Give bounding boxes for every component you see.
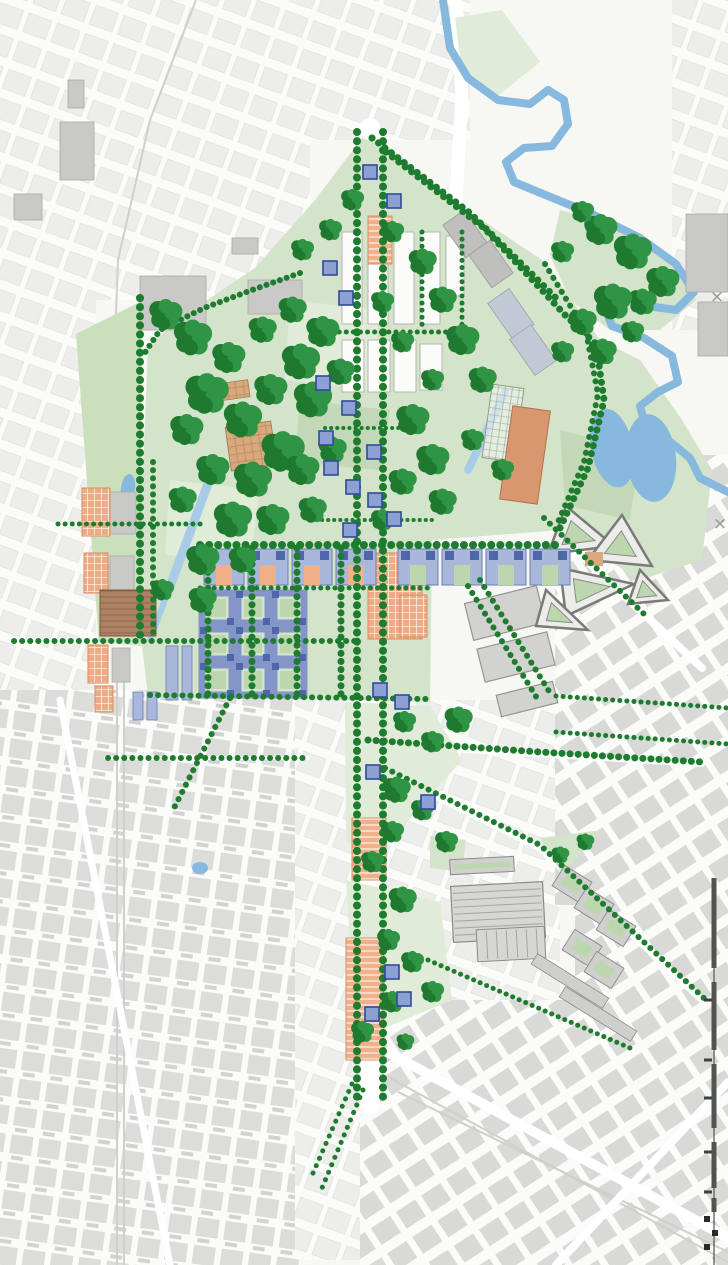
- tree-cluster: [159, 299, 173, 313]
- tree-cluster: [384, 929, 394, 939]
- u-block-tower: [426, 551, 435, 560]
- tree-cluster: [442, 831, 452, 841]
- tree-cluster: [233, 422, 248, 437]
- tree-cluster: [456, 324, 470, 338]
- tree-cluster: [656, 266, 670, 280]
- railway-tick: [704, 1151, 712, 1154]
- tree-cluster: [426, 444, 440, 458]
- tree-cluster: [594, 214, 608, 228]
- pavilion-building: [339, 291, 353, 305]
- railway-marker: [704, 1244, 710, 1250]
- tree-cluster: [316, 316, 330, 330]
- tree-cluster: [296, 454, 310, 468]
- pavilion-building: [397, 992, 411, 1006]
- courtyard-block-tower: [236, 627, 243, 634]
- tree-cluster: [307, 496, 319, 508]
- tree-cluster: [427, 381, 436, 390]
- u-block-tower: [276, 551, 285, 560]
- pavilion-building: [366, 765, 380, 779]
- tree-cluster: [435, 302, 446, 313]
- gray-building: [698, 302, 728, 356]
- tree-cluster: [441, 843, 450, 852]
- tree-cluster: [255, 332, 266, 343]
- tree-cluster: [401, 1043, 408, 1050]
- pavilion-building: [367, 445, 381, 459]
- u-block-tower: [445, 551, 454, 560]
- tree-cluster: [654, 284, 667, 297]
- tree-cluster: [389, 792, 400, 803]
- tree-cluster: [575, 324, 586, 335]
- white-shed: [394, 232, 414, 324]
- pavilion-building: [342, 401, 356, 415]
- tree-cluster: [453, 706, 465, 718]
- tree-cluster: [367, 863, 376, 872]
- pavilion-building: [323, 261, 337, 275]
- tree-cluster: [195, 602, 206, 613]
- tree-cluster: [402, 1033, 410, 1041]
- pavilion-building: [368, 493, 382, 507]
- tree-cluster: [417, 811, 426, 820]
- tree-cluster: [368, 851, 378, 861]
- blue-slab: [166, 646, 178, 700]
- tree-cluster: [358, 1021, 368, 1031]
- tree-cluster: [417, 248, 429, 260]
- tree-cluster: [387, 233, 396, 242]
- tree-cluster: [628, 321, 638, 331]
- tree-cluster: [377, 303, 386, 312]
- courtyard-block-tower: [272, 627, 279, 634]
- railway-tick: [704, 1097, 712, 1100]
- tree-cluster: [597, 338, 609, 350]
- tree-cluster: [581, 843, 588, 850]
- u-block-courtyard: [216, 565, 232, 585]
- tree-cluster: [196, 397, 213, 414]
- gray-building: [686, 214, 728, 292]
- tree-cluster: [603, 304, 618, 319]
- tree-cluster: [272, 455, 289, 472]
- tree-cluster: [294, 472, 307, 485]
- pavilion-building: [387, 194, 401, 208]
- tree-cluster: [558, 341, 568, 351]
- tree-cluster: [415, 264, 426, 275]
- tree-cluster: [428, 369, 438, 379]
- pavilion-building: [316, 376, 330, 390]
- tree-cluster: [314, 334, 327, 347]
- u-block-courtyard: [410, 565, 426, 585]
- pavilion-building: [363, 165, 377, 179]
- tree-cluster: [157, 591, 166, 600]
- tree-cluster: [178, 432, 191, 445]
- tree-cluster: [578, 201, 588, 211]
- tree-cluster: [635, 304, 646, 315]
- u-block-courtyard: [454, 565, 470, 585]
- tree-cluster: [497, 471, 506, 480]
- tree-cluster: [498, 459, 508, 469]
- tree-cluster: [424, 462, 437, 475]
- gray-building: [110, 492, 136, 534]
- pavilion-building: [319, 431, 333, 445]
- map-marker-x-2[interactable]: ×: [713, 514, 727, 534]
- tree-cluster: [298, 239, 308, 249]
- courtyard-block-tower: [272, 663, 279, 670]
- tree-cluster: [451, 722, 462, 733]
- railway-tick: [704, 1059, 712, 1062]
- tree-cluster: [206, 454, 220, 468]
- tree-cluster: [264, 522, 277, 535]
- gray-building: [68, 80, 84, 108]
- tree-cluster: [391, 776, 403, 788]
- pavilion-building: [346, 480, 360, 494]
- tree-cluster: [333, 374, 344, 385]
- masterplan-map-stage: × ×: [0, 0, 728, 1265]
- courtyard-block-tower: [263, 618, 270, 625]
- tree-cluster: [605, 284, 622, 301]
- pavilion-building: [387, 512, 401, 526]
- tree-cluster: [347, 201, 356, 210]
- pavilion-building: [373, 683, 387, 697]
- tree-cluster: [223, 522, 238, 537]
- tree-cluster: [388, 221, 398, 231]
- tree-cluster: [407, 963, 416, 972]
- tree-cluster: [623, 254, 638, 269]
- pavilion-building: [395, 695, 409, 709]
- tree-cluster: [335, 358, 347, 370]
- blue-slab: [133, 692, 143, 720]
- tree-cluster: [558, 241, 568, 251]
- tree-cluster: [357, 1033, 366, 1042]
- tree-cluster: [237, 546, 249, 558]
- tree-cluster: [387, 833, 396, 842]
- u-block-tower: [558, 551, 567, 560]
- tree-cluster: [406, 404, 420, 418]
- tree-cluster: [625, 234, 642, 251]
- u-block-tower: [401, 551, 410, 560]
- tree-cluster: [266, 504, 280, 518]
- courtyard-block-tower: [272, 591, 279, 598]
- tree-cluster: [293, 344, 310, 361]
- tree-cluster: [377, 521, 386, 530]
- tree-cluster: [454, 342, 467, 355]
- tree-cluster: [388, 821, 398, 831]
- gray-building: [110, 556, 134, 592]
- u-block-courtyard: [498, 565, 514, 585]
- tree-cluster: [387, 1003, 396, 1012]
- tree-cluster: [637, 288, 649, 300]
- tree-cluster: [326, 219, 336, 229]
- tree-cluster: [285, 312, 296, 323]
- u-block-tower: [320, 551, 329, 560]
- tree-cluster: [297, 251, 306, 260]
- u-block-tower: [533, 551, 542, 560]
- pavilion-building: [343, 523, 357, 537]
- tree-cluster: [325, 231, 334, 240]
- tree-cluster: [291, 364, 306, 379]
- tree-cluster: [225, 502, 242, 519]
- salmon-building: [82, 488, 110, 536]
- tree-cluster: [428, 981, 438, 991]
- tree-cluster: [158, 579, 168, 589]
- tree-cluster: [556, 856, 563, 863]
- tree-cluster: [194, 562, 207, 575]
- railway-tick: [704, 1191, 712, 1194]
- gray-building: [14, 194, 42, 220]
- tree-cluster: [196, 544, 210, 558]
- tree-cluster: [395, 484, 406, 495]
- railway-tick: [704, 999, 712, 1002]
- tree-cluster: [395, 902, 406, 913]
- tree-cluster: [427, 993, 436, 1002]
- courtyard-block-tower: [236, 663, 243, 670]
- blue-slab: [182, 646, 192, 700]
- tree-cluster: [262, 392, 275, 405]
- tree-cluster: [220, 360, 233, 373]
- tree-cluster: [399, 723, 408, 732]
- u-block-tower: [489, 551, 498, 560]
- tree-cluster: [177, 486, 189, 498]
- pond: [192, 862, 208, 874]
- courtyard-block-tower: [227, 654, 234, 661]
- tree-cluster: [257, 316, 269, 328]
- tree-cluster: [198, 373, 217, 392]
- tree-cluster: [427, 743, 436, 752]
- tree-cluster: [204, 472, 217, 485]
- tree-cluster: [557, 353, 566, 362]
- tree-cluster: [627, 333, 636, 342]
- tree-cluster: [243, 482, 258, 497]
- tree-cluster: [397, 468, 409, 480]
- tree-cluster: [595, 354, 606, 365]
- tree-cluster: [305, 512, 316, 523]
- railway-marker: [712, 1230, 718, 1236]
- white-shed: [368, 340, 390, 392]
- tree-cluster: [582, 833, 590, 841]
- tree-cluster: [468, 429, 478, 439]
- tree-cluster: [245, 462, 262, 479]
- tree-cluster: [383, 941, 392, 950]
- pavilion-building: [324, 461, 338, 475]
- tree-cluster: [437, 488, 449, 500]
- courtyard-block-tower: [263, 654, 270, 661]
- salmon-building: [95, 686, 113, 712]
- map-marker-x-1[interactable]: ×: [710, 287, 724, 307]
- tree-cluster: [437, 286, 449, 298]
- brick-building: [100, 590, 156, 636]
- gray-building: [60, 122, 94, 180]
- tree-cluster: [180, 414, 194, 428]
- tree-cluster: [274, 431, 293, 450]
- tree-cluster: [185, 320, 202, 337]
- u-block-courtyard: [260, 565, 276, 585]
- railway-marker: [704, 1216, 710, 1222]
- u-block-tower: [470, 551, 479, 560]
- salmon-building: [400, 595, 427, 637]
- tree-cluster: [408, 951, 418, 961]
- tree-cluster: [397, 343, 406, 352]
- masterplan-map: × ×: [0, 0, 728, 1265]
- tree-cluster: [235, 562, 246, 573]
- tan-patch: [585, 552, 603, 566]
- tree-cluster: [388, 991, 398, 1001]
- tree-cluster: [428, 731, 438, 741]
- u-block-courtyard: [542, 565, 558, 585]
- tree-cluster: [378, 509, 388, 519]
- tree-cluster: [557, 253, 566, 262]
- tree-cluster: [197, 586, 209, 598]
- tree-cluster: [435, 504, 446, 515]
- tree-cluster: [398, 331, 408, 341]
- gray-building: [112, 648, 130, 682]
- tree-cluster: [378, 291, 388, 301]
- tree-cluster: [397, 886, 409, 898]
- tree-cluster: [557, 846, 565, 854]
- tree-cluster: [157, 317, 170, 330]
- tree-cluster: [477, 366, 489, 378]
- tree-cluster: [235, 402, 252, 419]
- salmon-building: [84, 553, 108, 593]
- u-block-tower: [514, 551, 523, 560]
- gray-building: [232, 238, 258, 254]
- pavilion-building: [385, 965, 399, 979]
- tree-cluster: [348, 189, 358, 199]
- tree-cluster: [222, 342, 236, 356]
- tree-cluster: [400, 711, 410, 721]
- u-block-tower: [364, 551, 373, 560]
- tree-cluster: [264, 374, 278, 388]
- tree-cluster: [577, 308, 589, 320]
- tree-cluster: [287, 296, 299, 308]
- tree-cluster: [475, 382, 486, 393]
- tree-cluster: [467, 441, 476, 450]
- tree-cluster: [577, 213, 586, 222]
- courtyard-block-tower: [227, 618, 234, 625]
- tree-cluster: [303, 402, 318, 417]
- tree-cluster: [175, 502, 186, 513]
- tree-cluster: [592, 232, 605, 245]
- pavilion-building: [421, 795, 435, 809]
- tree-cluster: [183, 340, 198, 355]
- fabric-zone: [0, 0, 310, 300]
- u-block-courtyard: [304, 565, 320, 585]
- pavilion-building: [365, 1007, 379, 1021]
- salmon-building: [88, 645, 108, 683]
- courtyard-block-tower: [236, 591, 243, 598]
- tree-cluster: [404, 422, 417, 435]
